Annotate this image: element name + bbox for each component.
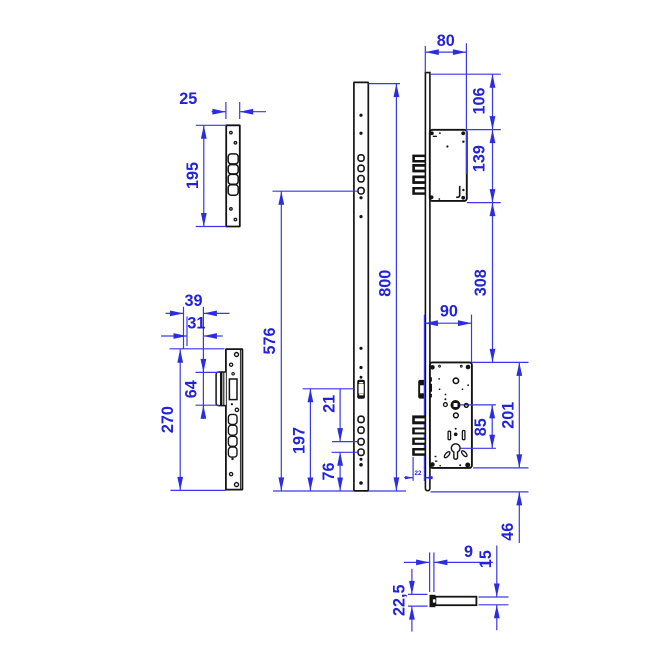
svg-text:576: 576 [261, 327, 279, 354]
svg-text:90: 90 [440, 302, 458, 320]
svg-text:201: 201 [500, 402, 518, 429]
svg-text:64: 64 [183, 380, 201, 398]
svg-text:80: 80 [437, 32, 455, 50]
svg-text:106: 106 [470, 87, 488, 114]
svg-text:9: 9 [464, 543, 473, 561]
svg-text:46: 46 [499, 523, 517, 541]
svg-text:25: 25 [179, 90, 197, 108]
svg-text:31: 31 [187, 314, 205, 332]
svg-text:800: 800 [376, 270, 394, 297]
svg-text:22: 22 [415, 470, 422, 477]
svg-text:15: 15 [477, 550, 495, 568]
svg-text:139: 139 [470, 145, 488, 172]
svg-text:21: 21 [320, 395, 338, 413]
svg-text:76: 76 [320, 462, 338, 480]
svg-text:195: 195 [184, 162, 202, 189]
svg-text:85: 85 [472, 418, 490, 436]
svg-text:22,5: 22,5 [390, 584, 408, 616]
svg-text:308: 308 [472, 269, 490, 296]
svg-text:197: 197 [290, 427, 308, 454]
svg-text:270: 270 [159, 406, 177, 433]
svg-text:39: 39 [184, 292, 202, 310]
